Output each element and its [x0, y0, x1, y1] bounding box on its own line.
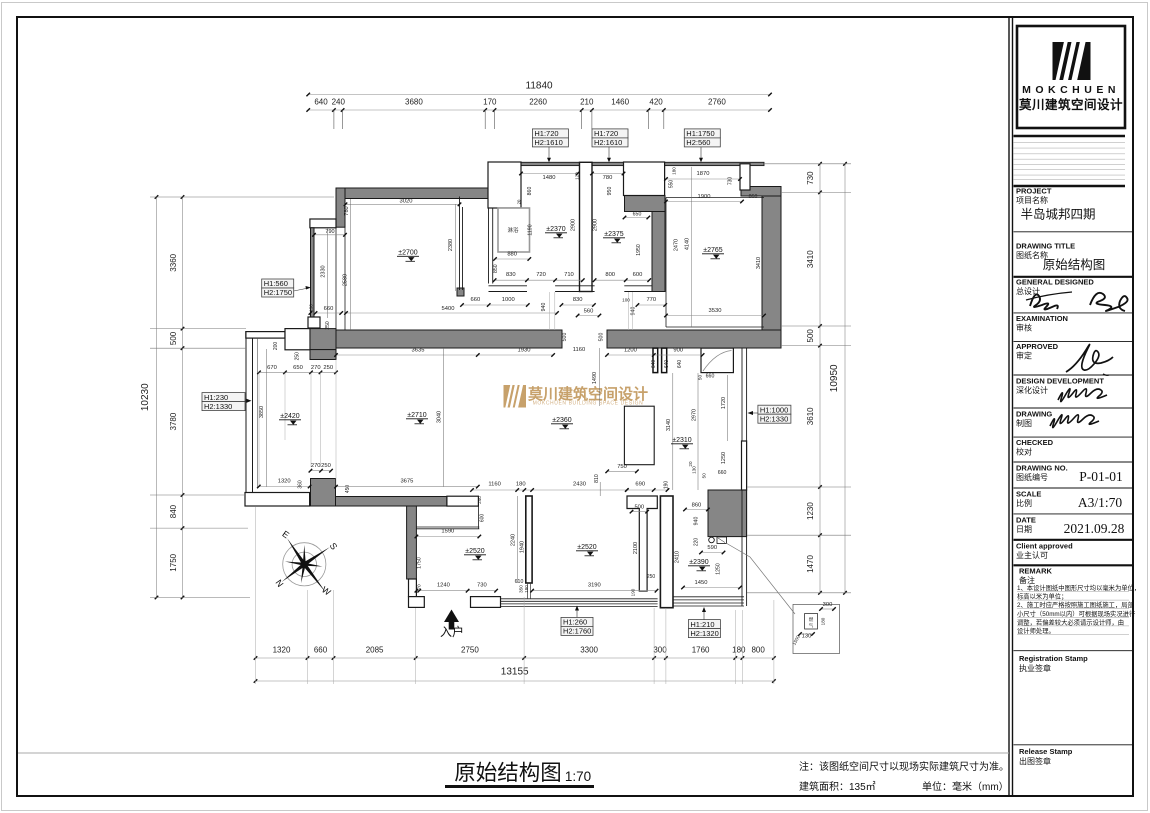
svg-text:±2310: ±2310 — [672, 437, 692, 444]
svg-text:H2:1330: H2:1330 — [204, 402, 232, 411]
svg-text:1200: 1200 — [624, 348, 637, 354]
svg-text:执业签章: 执业签章 — [1019, 663, 1051, 673]
svg-text:1760: 1760 — [692, 646, 710, 655]
svg-text:1160: 1160 — [573, 347, 585, 353]
svg-text:180: 180 — [524, 585, 529, 593]
svg-text:原始结构图: 原始结构图 — [1043, 257, 1106, 272]
svg-text:240: 240 — [332, 98, 346, 107]
svg-text:450: 450 — [345, 485, 351, 494]
svg-text:2085: 2085 — [366, 646, 384, 655]
svg-text:860: 860 — [692, 503, 702, 509]
svg-text:H1:720: H1:720 — [594, 129, 618, 138]
svg-text:300: 300 — [653, 646, 667, 655]
svg-text:840: 840 — [169, 504, 178, 518]
svg-text:690: 690 — [635, 482, 645, 488]
svg-text:调整，若偏差较大必须请示设计师，由: 调整，若偏差较大必须请示设计师，由 — [1017, 617, 1124, 626]
svg-text:H1:230: H1:230 — [204, 393, 228, 402]
svg-text:1240: 1240 — [437, 583, 450, 589]
svg-text:APPROVED: APPROVED — [1016, 342, 1059, 351]
svg-text:2100: 2100 — [633, 542, 639, 554]
svg-text:EXAMINATION: EXAMINATION — [1016, 314, 1068, 323]
svg-text:640: 640 — [677, 360, 683, 369]
svg-text:180: 180 — [672, 167, 677, 175]
svg-text:±2700: ±2700 — [398, 250, 418, 257]
svg-text:2380: 2380 — [448, 239, 454, 251]
svg-text:1160: 1160 — [488, 482, 500, 488]
svg-text:210: 210 — [580, 98, 594, 107]
svg-text:420: 420 — [649, 98, 663, 107]
svg-text:2760: 2760 — [708, 98, 726, 107]
svg-text:800: 800 — [605, 272, 615, 278]
svg-text:±2360: ±2360 — [552, 417, 572, 424]
svg-text:2900: 2900 — [593, 219, 599, 231]
svg-text:270: 270 — [311, 365, 321, 371]
svg-text:10950: 10950 — [829, 364, 840, 392]
svg-text:250: 250 — [323, 365, 333, 371]
svg-text:±2765: ±2765 — [703, 247, 723, 254]
svg-text:图纸编号: 图纸编号 — [1016, 472, 1048, 482]
svg-text:250: 250 — [294, 352, 300, 361]
svg-text:MOKCHUEN: MOKCHUEN — [1022, 84, 1120, 96]
svg-text:3020: 3020 — [400, 199, 413, 205]
svg-text:3190: 3190 — [588, 583, 601, 589]
svg-text:710: 710 — [564, 272, 574, 278]
svg-text:3780: 3780 — [169, 412, 178, 430]
svg-text:2330: 2330 — [321, 265, 327, 277]
svg-text:200: 200 — [273, 342, 279, 351]
svg-text:H1:1000: H1:1000 — [760, 405, 788, 414]
svg-text:500: 500 — [634, 505, 644, 511]
svg-text:H1:720: H1:720 — [534, 129, 558, 138]
svg-text:DRAWING: DRAWING — [1016, 410, 1052, 419]
svg-text:业主认可: 业主认可 — [1016, 550, 1048, 560]
svg-text:GENERAL DESIGNED: GENERAL DESIGNED — [1016, 278, 1094, 287]
svg-text:780: 780 — [344, 206, 350, 215]
svg-text:3530: 3530 — [709, 308, 722, 314]
svg-text:3040: 3040 — [437, 411, 443, 423]
svg-text:660: 660 — [718, 470, 727, 476]
svg-text:Registration Stamp: Registration Stamp — [1019, 654, 1088, 663]
svg-text:3850: 3850 — [259, 406, 265, 418]
svg-text:130: 130 — [802, 634, 812, 640]
svg-text:660: 660 — [706, 374, 715, 380]
svg-text:莫川建筑空间设计: 莫川建筑空间设计 — [1019, 97, 1123, 112]
svg-text:半岛城邦四期: 半岛城邦四期 — [1020, 207, 1095, 222]
svg-text:860: 860 — [749, 194, 758, 200]
svg-text:940: 940 — [631, 307, 637, 316]
svg-text:830: 830 — [506, 272, 516, 278]
svg-text:1750: 1750 — [417, 557, 423, 569]
svg-text:50: 50 — [698, 375, 703, 381]
svg-text:深化设计: 深化设计 — [1016, 385, 1048, 395]
svg-text:10230: 10230 — [140, 383, 151, 411]
svg-text:1900: 1900 — [698, 194, 711, 200]
svg-text:850: 850 — [493, 264, 499, 273]
svg-text:2240: 2240 — [511, 534, 517, 546]
svg-text:1870: 1870 — [697, 171, 710, 177]
svg-text:DESIGN DEVELOPMENT: DESIGN DEVELOPMENT — [1016, 377, 1104, 386]
svg-text:1190: 1190 — [528, 224, 534, 235]
svg-text:13155: 13155 — [501, 667, 529, 678]
svg-text:11840: 11840 — [526, 81, 554, 92]
svg-text:130: 130 — [309, 304, 314, 312]
svg-text:670: 670 — [267, 365, 277, 371]
svg-text:H1:560: H1:560 — [264, 279, 288, 288]
svg-text:1250: 1250 — [721, 452, 727, 464]
svg-text:DRAWING TITLE: DRAWING TITLE — [1016, 242, 1075, 251]
svg-text:810: 810 — [594, 474, 600, 483]
svg-text:1320: 1320 — [273, 646, 291, 655]
svg-text:原始结构图: 原始结构图 — [454, 761, 562, 785]
svg-text:1480: 1480 — [543, 175, 556, 181]
svg-text:190: 190 — [631, 588, 636, 596]
svg-text:830: 830 — [573, 297, 583, 303]
svg-text:660: 660 — [471, 297, 481, 303]
svg-text:标高以米为单位；: 标高以米为单位； — [1017, 592, 1067, 601]
svg-text:±2370: ±2370 — [546, 226, 566, 233]
svg-text:560: 560 — [584, 308, 594, 314]
svg-text:20: 20 — [517, 199, 522, 204]
svg-text:建筑面积：135㎡: 建筑面积：135㎡ — [799, 780, 876, 793]
svg-text:640: 640 — [314, 98, 328, 107]
svg-text:1470: 1470 — [806, 555, 815, 573]
svg-text:审核: 审核 — [1016, 323, 1032, 333]
svg-text:20: 20 — [688, 461, 693, 467]
svg-text:500: 500 — [599, 333, 605, 342]
svg-text:H2:560: H2:560 — [686, 138, 710, 147]
svg-text:180: 180 — [516, 482, 526, 488]
svg-text:600: 600 — [633, 272, 643, 278]
svg-text:H2:1760: H2:1760 — [563, 627, 591, 636]
svg-text:燃: 燃 — [809, 616, 814, 623]
svg-text:±2420: ±2420 — [280, 413, 300, 420]
svg-text:590: 590 — [707, 545, 717, 551]
svg-text:设计师处理。: 设计师处理。 — [1017, 626, 1055, 635]
svg-text:3300: 3300 — [580, 646, 598, 655]
svg-text:100: 100 — [622, 298, 630, 303]
svg-text:1450: 1450 — [695, 580, 708, 586]
svg-text:640: 640 — [664, 360, 670, 369]
svg-text:DATE: DATE — [1016, 516, 1036, 525]
svg-text:860: 860 — [527, 187, 533, 196]
svg-text:±2710: ±2710 — [407, 412, 427, 419]
svg-text:940: 940 — [541, 303, 547, 312]
svg-text:940: 940 — [694, 517, 700, 526]
svg-text:Release Stamp: Release Stamp — [1019, 747, 1073, 756]
svg-text:1590: 1590 — [441, 529, 454, 535]
svg-text:1230: 1230 — [806, 502, 815, 520]
svg-text:SCALE: SCALE — [1016, 490, 1041, 499]
svg-text:±2520: ±2520 — [465, 548, 485, 555]
svg-text:250: 250 — [325, 321, 331, 330]
svg-text:800: 800 — [751, 646, 765, 655]
svg-text:H1:210: H1:210 — [690, 620, 714, 629]
svg-text:3635: 3635 — [412, 348, 425, 354]
svg-text:70: 70 — [417, 584, 423, 590]
svg-text:1930: 1930 — [518, 348, 531, 354]
svg-text:H1:260: H1:260 — [563, 618, 587, 627]
svg-text:日期: 日期 — [1016, 525, 1032, 534]
svg-text:1250: 1250 — [716, 563, 722, 575]
svg-text:制图: 制图 — [1016, 418, 1032, 428]
svg-text:180: 180 — [821, 617, 826, 625]
svg-text:550: 550 — [669, 180, 675, 189]
svg-text:650: 650 — [293, 365, 303, 371]
svg-text:130: 130 — [691, 466, 696, 474]
svg-text:3140: 3140 — [666, 419, 672, 431]
svg-text:500: 500 — [806, 329, 815, 343]
svg-text:50: 50 — [701, 473, 706, 479]
svg-text:2、施工时应严格按照施工图纸施工，局部: 2、施工时应严格按照施工图纸施工，局部 — [1017, 600, 1134, 609]
svg-text:600: 600 — [480, 514, 486, 523]
svg-text:180: 180 — [732, 646, 746, 655]
svg-text:350: 350 — [519, 585, 524, 593]
svg-text:300: 300 — [823, 602, 833, 608]
svg-text:730: 730 — [806, 171, 815, 185]
svg-text:MOKCHUEN BUILDING SPACE DESIGN: MOKCHUEN BUILDING SPACE DESIGN — [533, 401, 644, 407]
svg-text:660: 660 — [314, 646, 328, 655]
svg-text:3360: 3360 — [169, 253, 178, 271]
svg-text:780: 780 — [603, 175, 613, 181]
svg-text:750: 750 — [617, 464, 627, 470]
svg-text:1:70: 1:70 — [565, 769, 591, 784]
svg-text:730: 730 — [477, 583, 487, 589]
svg-text:1320: 1320 — [278, 479, 291, 485]
svg-text:1490: 1490 — [592, 372, 598, 384]
svg-text:Client approved: Client approved — [1016, 542, 1073, 551]
svg-text:1940: 1940 — [520, 541, 526, 553]
svg-text:±2520: ±2520 — [577, 544, 597, 551]
svg-text:730: 730 — [728, 177, 734, 186]
svg-text:4140: 4140 — [685, 238, 691, 250]
svg-text:250: 250 — [647, 574, 656, 580]
svg-text:500: 500 — [169, 331, 178, 345]
svg-text:气: 气 — [809, 622, 814, 628]
svg-text:1720: 1720 — [721, 397, 727, 409]
svg-text:170: 170 — [483, 98, 497, 107]
svg-text:2470: 2470 — [674, 239, 680, 251]
svg-text:1750: 1750 — [169, 553, 178, 571]
svg-text:2021.09.28: 2021.09.28 — [1064, 521, 1125, 536]
svg-text:出图签章: 出图签章 — [1019, 756, 1051, 766]
svg-text:2970: 2970 — [692, 409, 698, 421]
svg-text:±2390: ±2390 — [689, 559, 709, 566]
svg-text:3610: 3610 — [806, 407, 815, 425]
svg-text:770: 770 — [646, 297, 656, 303]
svg-text:500: 500 — [562, 333, 568, 342]
svg-text:900: 900 — [673, 348, 683, 354]
svg-text:淋浴: 淋浴 — [507, 226, 519, 234]
svg-text:H1:1750: H1:1750 — [686, 129, 714, 138]
svg-text:5400: 5400 — [442, 306, 455, 312]
svg-text:DRAWING NO.: DRAWING NO. — [1016, 464, 1068, 473]
svg-text:2750: 2750 — [461, 646, 479, 655]
svg-text:PROJECT: PROJECT — [1016, 187, 1052, 196]
svg-text:H2:1320: H2:1320 — [690, 629, 718, 638]
svg-text:A3/1:70: A3/1:70 — [1078, 495, 1123, 510]
svg-text:880: 880 — [507, 252, 517, 258]
svg-text:注：该图纸空间尺寸以现场实际建筑尺寸为准。: 注：该图纸空间尺寸以现场实际建筑尺寸为准。 — [799, 760, 1009, 773]
svg-text:P-01-01: P-01-01 — [1079, 469, 1123, 484]
svg-text:3410: 3410 — [756, 257, 762, 269]
svg-text:270: 270 — [311, 463, 321, 469]
svg-text:H2:1330: H2:1330 — [760, 414, 788, 423]
svg-text:±2375: ±2375 — [604, 231, 624, 238]
svg-text:单位：毫米（mm）: 单位：毫米（mm） — [922, 780, 1009, 793]
svg-text:2580: 2580 — [343, 274, 349, 286]
svg-text:校对: 校对 — [1016, 447, 1032, 457]
svg-text:审定: 审定 — [1016, 351, 1032, 361]
svg-text:3675: 3675 — [400, 479, 413, 485]
svg-text:比例: 比例 — [1016, 498, 1032, 508]
svg-text:项目名称: 项目名称 — [1016, 195, 1048, 205]
svg-text:790: 790 — [325, 229, 334, 235]
svg-text:190: 190 — [664, 481, 670, 490]
svg-text:660: 660 — [324, 306, 334, 312]
svg-text:H2:1610: H2:1610 — [594, 138, 622, 147]
svg-text:640: 640 — [651, 360, 657, 369]
svg-text:CHECKED: CHECKED — [1016, 438, 1054, 447]
svg-text:2900: 2900 — [571, 219, 577, 231]
svg-text:360: 360 — [298, 480, 304, 489]
svg-text:950: 950 — [607, 187, 613, 196]
svg-text:250: 250 — [321, 463, 331, 469]
svg-text:1、本设计图纸中图形尺寸均以毫米为单位，: 1、本设计图纸中图形尺寸均以毫米为单位， — [1017, 583, 1140, 592]
svg-text:2260: 2260 — [529, 98, 547, 107]
svg-text:1950: 1950 — [636, 244, 642, 256]
svg-text:220: 220 — [694, 538, 700, 547]
svg-text:650: 650 — [633, 212, 642, 218]
svg-text:240: 240 — [477, 496, 482, 504]
svg-text:小尺寸（50mm以内）可根据现场实况进行: 小尺寸（50mm以内）可根据现场实况进行 — [1017, 609, 1136, 618]
svg-text:入户: 入户 — [440, 624, 464, 639]
svg-text:720: 720 — [536, 272, 546, 278]
svg-text:H2:1610: H2:1610 — [534, 138, 562, 147]
svg-text:2410: 2410 — [675, 551, 681, 563]
svg-text:1460: 1460 — [611, 98, 629, 107]
svg-text:610: 610 — [515, 579, 524, 585]
svg-text:H2:1750: H2:1750 — [264, 288, 292, 297]
svg-text:1000: 1000 — [502, 297, 515, 303]
svg-text:2430: 2430 — [573, 482, 586, 488]
svg-text:REMARK: REMARK — [1019, 567, 1052, 576]
svg-text:3680: 3680 — [405, 98, 423, 107]
svg-text:备注: 备注 — [1019, 575, 1035, 585]
svg-text:3410: 3410 — [806, 250, 815, 268]
svg-text:120: 120 — [575, 172, 580, 180]
